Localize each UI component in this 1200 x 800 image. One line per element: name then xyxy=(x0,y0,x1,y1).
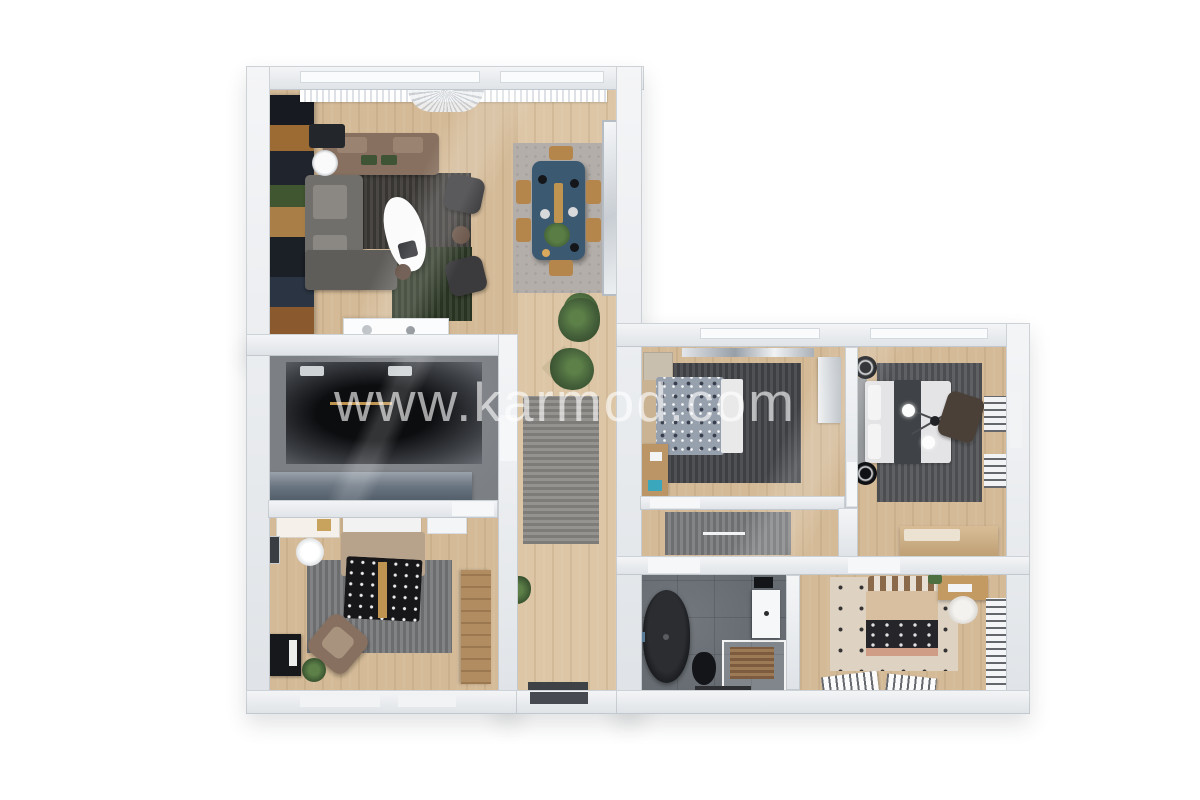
wood-chest xyxy=(900,526,998,560)
tv-console xyxy=(270,472,472,503)
dining-chair xyxy=(516,218,531,242)
sofa-cushion xyxy=(393,137,423,153)
dresser-paper xyxy=(289,640,297,666)
window-bedroom-left-bottom xyxy=(398,695,456,707)
desk-item xyxy=(317,519,331,531)
gold-accent-line xyxy=(330,402,392,405)
door-opening-bathroom xyxy=(648,558,700,573)
round-chair xyxy=(948,596,978,624)
wall-mark xyxy=(300,366,324,376)
desk-paper xyxy=(650,452,662,461)
bed-br xyxy=(864,574,940,664)
sink-drain xyxy=(764,611,769,616)
toilet xyxy=(692,652,716,685)
wall-living-bottom xyxy=(246,334,516,356)
bath-fixture xyxy=(754,577,773,588)
plant xyxy=(302,658,326,682)
dining-chair xyxy=(586,218,601,242)
plant xyxy=(550,348,594,390)
window-master-right xyxy=(1010,392,1022,448)
centerpiece-plant xyxy=(544,223,570,247)
pillow xyxy=(868,385,881,420)
round-chair xyxy=(296,538,324,566)
green-pillow xyxy=(361,155,377,165)
entry-door xyxy=(530,692,588,704)
media-dark-rug xyxy=(286,362,482,464)
plate xyxy=(542,249,550,257)
desk-item-blue xyxy=(648,480,662,491)
dining-chair xyxy=(586,180,601,204)
corridor-rug xyxy=(665,512,791,555)
plate xyxy=(538,175,547,184)
hallway-runner-rug xyxy=(523,396,599,544)
window-rightwing-top xyxy=(870,328,988,339)
bulb xyxy=(902,404,915,417)
wall-shelf xyxy=(682,348,814,357)
wardrobe-strip xyxy=(461,570,491,684)
white-accent-line xyxy=(703,532,745,535)
window-living-top xyxy=(300,71,480,83)
ceiling-fan xyxy=(408,88,484,112)
floor-plan-scene: www.karmod.com xyxy=(0,0,1200,800)
armchair xyxy=(442,172,487,215)
bathtub xyxy=(643,590,690,683)
side-table xyxy=(309,124,345,148)
door-opening-media xyxy=(500,415,517,461)
tub-drain xyxy=(663,634,669,640)
dining-table xyxy=(532,161,585,260)
green-pillow xyxy=(381,155,397,165)
cabinet-gray xyxy=(818,357,841,423)
shower-mat xyxy=(730,647,774,679)
window-bedroom-left-bottom xyxy=(300,695,380,707)
sofa-cushion xyxy=(313,185,347,219)
gold-runner xyxy=(378,562,387,618)
plate xyxy=(570,179,579,188)
plant xyxy=(558,298,600,342)
wall-outer-left xyxy=(246,66,270,714)
gray-sofa-chaise xyxy=(305,250,397,290)
chest-lid xyxy=(904,529,960,541)
dining-chair xyxy=(549,146,573,160)
stool xyxy=(452,226,470,244)
window-living-top xyxy=(500,71,604,83)
door-opening-bedroom-left xyxy=(452,502,494,516)
desk-wood xyxy=(642,444,668,496)
salmon-edge xyxy=(866,648,938,656)
wall-art xyxy=(269,536,280,564)
dark-blanket xyxy=(866,620,938,648)
wall-corridor-right xyxy=(838,508,858,558)
wall-leftwing-bottom xyxy=(246,690,518,714)
window-rightwing-top xyxy=(700,328,820,339)
sheet-white xyxy=(721,379,743,453)
wall-hallway-left xyxy=(498,334,518,714)
stool xyxy=(395,264,411,280)
dresser-black xyxy=(269,634,301,676)
armchair-cushion xyxy=(320,624,357,661)
door-opening-bedroom-br xyxy=(848,558,900,573)
pillow xyxy=(868,424,881,459)
wall-mark xyxy=(388,366,412,376)
candle xyxy=(554,183,563,223)
vanity-sink xyxy=(752,590,780,638)
wall-outer-right xyxy=(1006,323,1030,714)
dining-chair xyxy=(516,180,531,204)
plate xyxy=(540,209,550,219)
bulb xyxy=(922,436,935,449)
desk-paper xyxy=(948,584,972,592)
dining-chair xyxy=(549,260,573,276)
plate xyxy=(568,207,578,217)
bed-left xyxy=(341,514,425,630)
tray xyxy=(397,240,418,260)
plant-small xyxy=(928,574,942,584)
wall-hallway-right xyxy=(616,66,642,714)
door-opening-bedroom-middle xyxy=(650,498,700,508)
wall-bath-bed-divider xyxy=(786,575,800,690)
plate xyxy=(570,243,579,252)
door-opening-master xyxy=(847,462,857,506)
wall-shelf-unit xyxy=(984,454,1006,488)
wall-rightwing-bottom xyxy=(616,690,1030,714)
wall-shelf-unit xyxy=(984,396,1006,432)
table-lamp xyxy=(312,150,338,176)
